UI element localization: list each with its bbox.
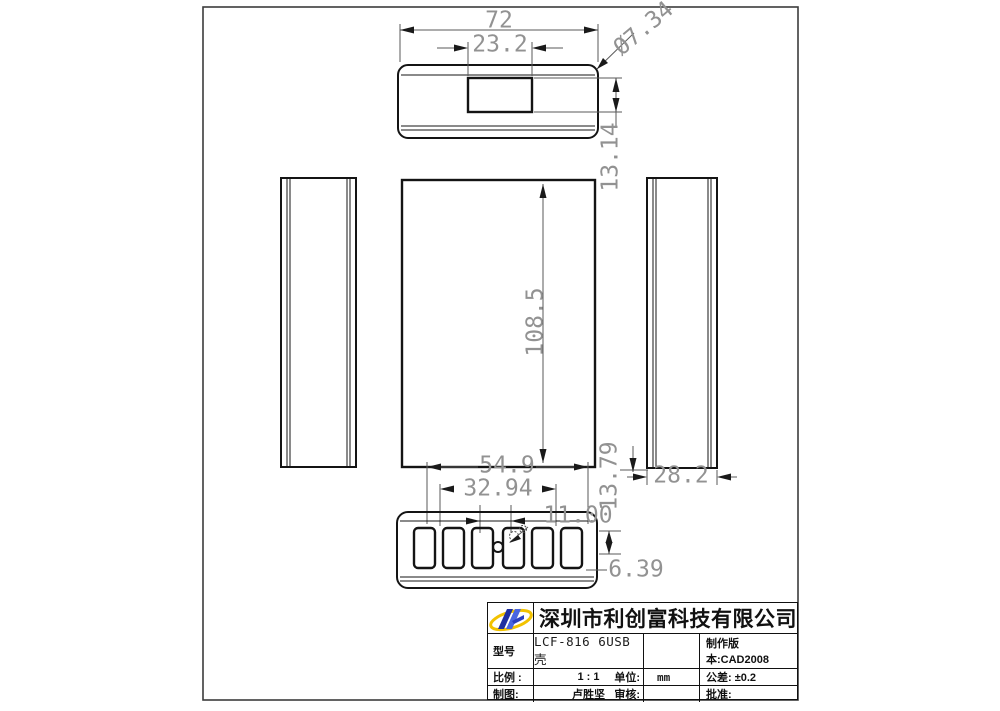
usb-port-2 — [443, 528, 464, 568]
cad-drawing-sheet: 72 23.2 Ø7.34 13.14 108.5 54.9 32.94 11.… — [0, 0, 1000, 711]
usb-port-6 — [561, 528, 582, 568]
model-empty-cell — [644, 634, 700, 668]
unit-value: mm — [657, 671, 670, 684]
dimension-13-14 — [534, 78, 622, 126]
drawn-by-label: 制图: — [488, 686, 534, 702]
tolerance-value: 公差: ±0.2 — [700, 669, 797, 685]
version-value: 制作版本:CAD2008 — [700, 634, 797, 668]
display-window — [468, 78, 532, 112]
usb-port-4 — [503, 528, 524, 568]
model-value: LCF-816 6USB壳 — [534, 634, 643, 668]
dim-label-32-94: 32.94 — [463, 478, 532, 501]
scale-label: 比例 : — [488, 669, 534, 685]
led-indicator — [493, 542, 503, 552]
top-view — [398, 65, 598, 138]
dim-label-6-39: 6.39 — [608, 559, 663, 582]
left-side-view — [281, 178, 356, 467]
company-logo — [488, 603, 534, 633]
dim-label-54-9: 54.9 — [479, 455, 534, 478]
checked-label: 审核: — [614, 686, 640, 702]
drawn-by-value: 卢胜坚 — [572, 686, 605, 702]
dim-label-108-5: 108.5 — [525, 287, 548, 356]
usb-port-1 — [414, 528, 435, 568]
checked-empty-cell — [644, 686, 700, 702]
dimension-13-79 — [620, 446, 648, 472]
right-side-view — [647, 178, 717, 468]
dim-label-28-2: 28.2 — [653, 465, 708, 488]
unit-label: 单位: — [614, 669, 640, 685]
usb-port-5 — [532, 528, 553, 568]
company-name: 深圳市利创富科技有限公司 — [534, 603, 797, 633]
title-block-row-signatures: 制图: 卢胜坚 审核: 批准: — [488, 686, 797, 702]
model-label: 型号 — [488, 634, 534, 668]
approved-label: 批准: — [700, 686, 797, 702]
title-block: 深圳市利创富科技有限公司 型号 LCF-816 6USB壳 制作版本:CAD20… — [487, 602, 798, 700]
dim-label-13-79: 13.79 — [599, 441, 622, 510]
title-block-row-model: 型号 LCF-816 6USB壳 制作版本:CAD2008 — [488, 634, 797, 669]
dim-label-13-14: 13.14 — [600, 122, 623, 191]
front-view — [402, 180, 595, 467]
company-logo-icon — [488, 603, 534, 636]
dim-label-72: 72 — [485, 10, 513, 33]
usb-port-3 — [472, 528, 493, 568]
scale-value: 1 : 1 — [577, 671, 599, 683]
dim-label-23-2: 23.2 — [472, 34, 527, 57]
title-block-row-scale: 比例 : 1 : 1 单位: mm 公差: ±0.2 — [488, 669, 797, 686]
title-block-header: 深圳市利创富科技有限公司 — [488, 603, 797, 634]
